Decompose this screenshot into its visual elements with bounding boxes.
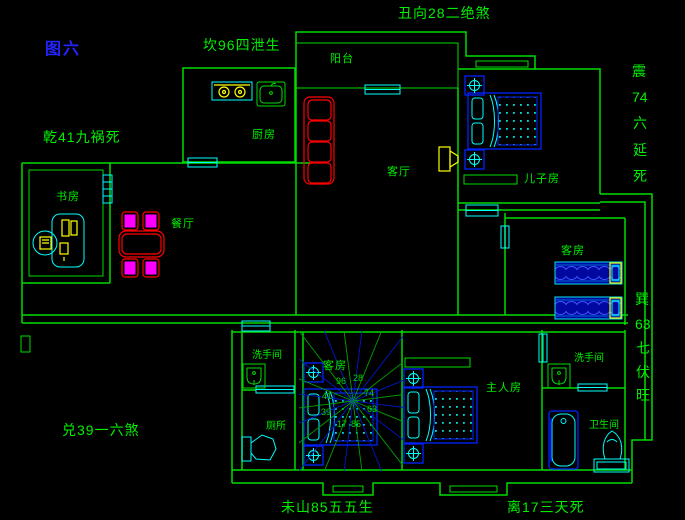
guest-room-east-furniture [555, 262, 622, 319]
shelf-icon [464, 175, 517, 184]
annotation-southwest: 未山85五五生 [281, 499, 374, 515]
window-icon [256, 386, 294, 393]
dining-table-icon [119, 231, 164, 257]
sink-icon [548, 364, 570, 388]
annotation-north: 坎96四泄生 [203, 37, 281, 53]
annotation-southeast-char: 巽 [635, 291, 649, 307]
floor-plan-canvas[interactable]: 96 28 74 41 63 39 17 85 图六 丑向28二绝煞 坎96四泄… [0, 0, 685, 520]
annotation-southeast-char: 伏 [636, 364, 650, 380]
room-label-guest-east: 客房 [561, 243, 585, 257]
nightstand-lamp-icon [404, 444, 423, 463]
room-label-washroom-left: 洗手间 [252, 348, 282, 361]
annotation-southeast-char: 63 [635, 316, 651, 332]
wall-long-horizontal [22, 315, 628, 323]
annotation-top: 丑向28二绝煞 [398, 5, 491, 21]
annotation-east-char: 震 [632, 63, 646, 79]
kitchen-sink-icon [257, 82, 285, 106]
son-room-furniture [464, 76, 541, 184]
room-label-study: 书房 [56, 190, 80, 203]
wall-study [22, 163, 310, 283]
bed-icon [404, 387, 477, 443]
window-icon [501, 226, 509, 248]
annotation-east-char: 74 [632, 89, 648, 105]
computer-icon [62, 220, 69, 236]
window-icon [188, 158, 217, 167]
annotation-east-char: 延 [633, 142, 647, 158]
wall-study-inner [29, 170, 103, 276]
kitchen-fixtures [212, 82, 285, 106]
room-label-washroom-right: 洗手间 [574, 351, 604, 364]
compass-number: 39 [321, 407, 331, 417]
stove-icon [212, 82, 252, 100]
window-icon [466, 205, 498, 216]
room-label-toilet: 厕所 [266, 420, 286, 432]
bed-icon [555, 297, 622, 319]
compass-number: 85 [351, 419, 361, 429]
master-room-furniture [404, 358, 477, 463]
window-icon [578, 384, 607, 391]
toilet-icon [594, 431, 629, 472]
nightstand-lamp-icon [465, 76, 484, 95]
nightstand-lamp-icon [465, 150, 484, 169]
study-furniture [33, 214, 84, 267]
shelf-icon [405, 358, 470, 367]
annotation-south: 离17三天死 [507, 499, 585, 515]
toilet-icon [242, 435, 276, 461]
sofa-icon [304, 97, 334, 184]
room-label-living: 客厅 [387, 164, 411, 178]
nightstand-lamp-icon [304, 446, 323, 465]
room-label-master: 主人房 [486, 381, 522, 394]
annotation-west: 兑39一六煞 [62, 422, 140, 438]
wall-stub-left [21, 336, 30, 352]
compass-number: 74 [364, 388, 374, 398]
chair-icon [143, 212, 159, 230]
sink-icon [243, 364, 265, 388]
window-icon [539, 334, 547, 362]
nightstand-lamp-icon [404, 369, 423, 388]
chair-icon [33, 231, 57, 255]
annotation-northwest: 乾41九祸死 [43, 129, 121, 145]
wall-right-nested [600, 194, 652, 483]
living-room-furniture [304, 97, 458, 184]
bed-icon [555, 262, 622, 284]
annotation-east: 震 74 六 延 死 [632, 63, 648, 184]
bed-icon [468, 93, 541, 149]
annotation-southeast-char: 七 [636, 340, 650, 356]
annotation-southeast-char: 旺 [636, 387, 650, 403]
bay-window-left [333, 486, 363, 492]
chair-icon [122, 212, 138, 230]
chair-icon [122, 259, 138, 277]
room-label-kitchen: 厨房 [252, 128, 276, 141]
annotation-east-char: 六 [633, 115, 647, 131]
cad-floorplan-screen: 96 28 74 41 63 39 17 85 图六 丑向28二绝煞 坎96四泄… [0, 0, 685, 520]
compass-number: 63 [367, 404, 377, 414]
compass-number: 17 [337, 419, 347, 429]
compass-number: 96 [336, 376, 346, 386]
wall-balcony-inner [296, 43, 458, 88]
top-wall-window [476, 61, 528, 67]
compass-number: 28 [353, 373, 363, 383]
chair-icon [143, 259, 159, 277]
window-icon [365, 85, 400, 94]
room-label-balcony: 阳台 [330, 51, 354, 65]
dining-set [119, 212, 164, 277]
wall-bottom-rooms [232, 330, 625, 483]
bay-window-right [450, 486, 497, 492]
room-label-son-room: 儿子房 [524, 172, 560, 185]
room-label-bathroom: 卫生间 [589, 418, 619, 431]
figure-label: 图六 [45, 39, 81, 58]
annotation-southeast: 巽 63 七 伏 旺 [635, 291, 651, 403]
compass-number: 41 [322, 391, 332, 401]
annotation-east-char: 死 [633, 168, 647, 184]
wall-bottom-outer [232, 483, 632, 495]
room-label-guest-center: 客房 [323, 358, 347, 372]
room-label-dining: 餐厅 [171, 216, 195, 230]
tv-icon [439, 147, 458, 171]
bathtub-icon [549, 411, 578, 469]
